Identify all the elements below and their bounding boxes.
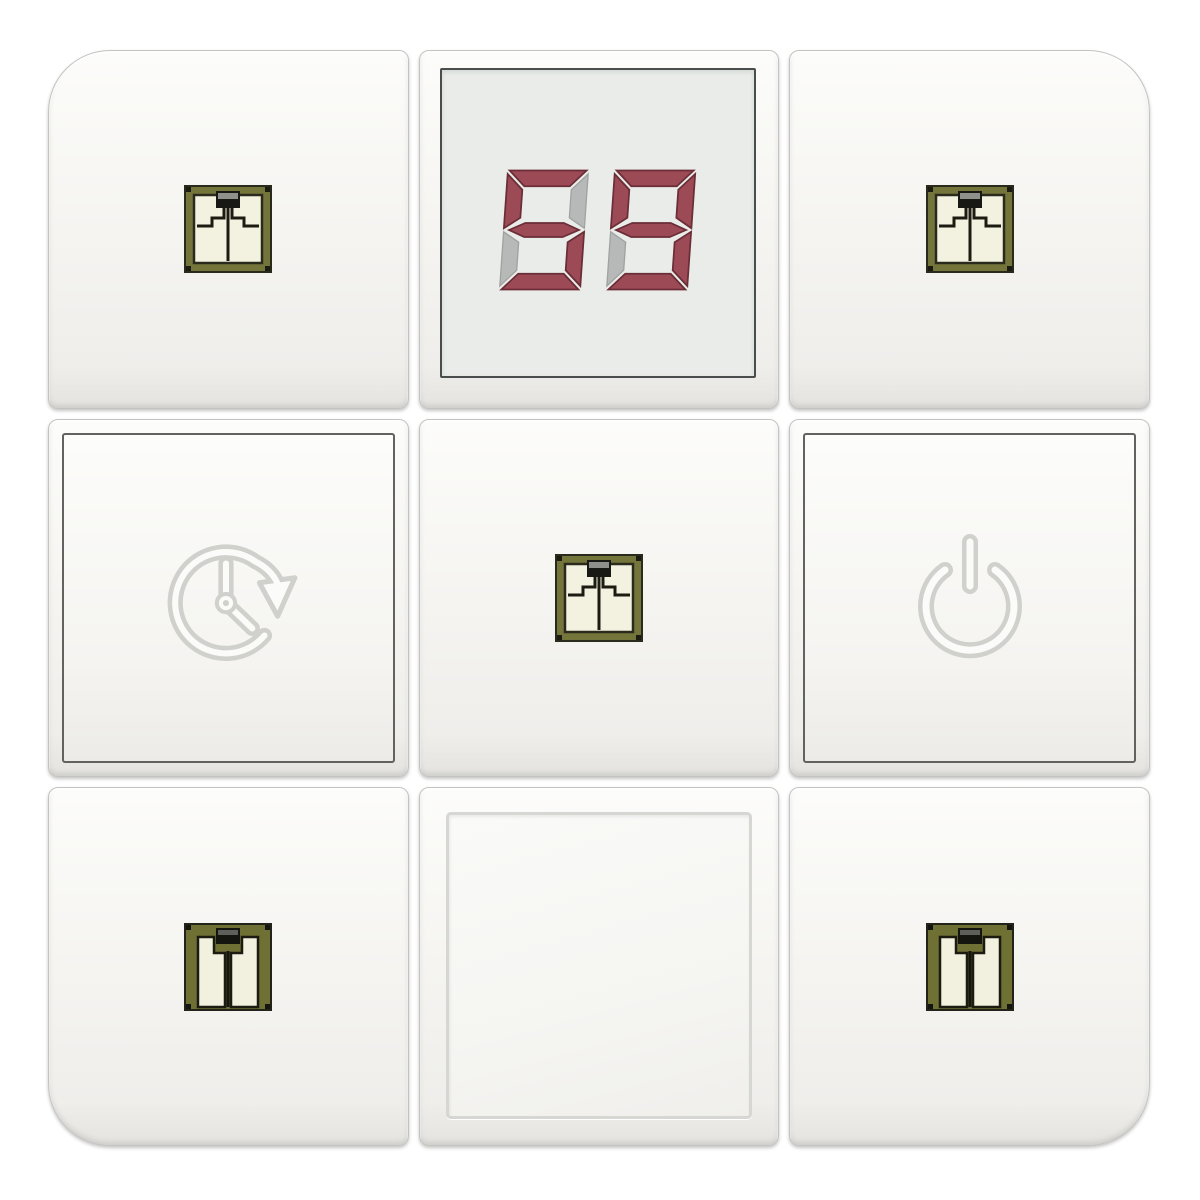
- key-bottom-right[interactable]: [789, 787, 1150, 1146]
- touch-key-panel: 59: [48, 50, 1150, 1146]
- timer-history-icon: [152, 522, 304, 674]
- seven-segment-digit: [605, 168, 698, 292]
- key-top-left[interactable]: [48, 50, 409, 409]
- smd-chip-icon: [555, 554, 643, 642]
- key-timer[interactable]: [48, 419, 409, 778]
- key-display: 59: [419, 50, 780, 409]
- key-top-right[interactable]: [789, 50, 1150, 409]
- key-bottom-left[interactable]: [48, 787, 409, 1146]
- seven-segment-digit: [498, 168, 591, 292]
- key-inset-frame: [803, 433, 1136, 764]
- smd-chip-icon: [926, 185, 1014, 273]
- power-icon: [900, 528, 1040, 668]
- key-power[interactable]: [789, 419, 1150, 778]
- key-center[interactable]: [419, 419, 780, 778]
- seven-segment-display: 59: [440, 68, 757, 378]
- key-inset-frame: [62, 433, 395, 764]
- smd-chip-pads-icon: [184, 923, 272, 1011]
- smd-chip-pads-icon: [926, 923, 1014, 1011]
- smd-chip-icon: [184, 185, 272, 273]
- display-digits: [498, 168, 698, 292]
- key-inset-frame: [446, 812, 753, 1119]
- key-blank[interactable]: [419, 787, 780, 1146]
